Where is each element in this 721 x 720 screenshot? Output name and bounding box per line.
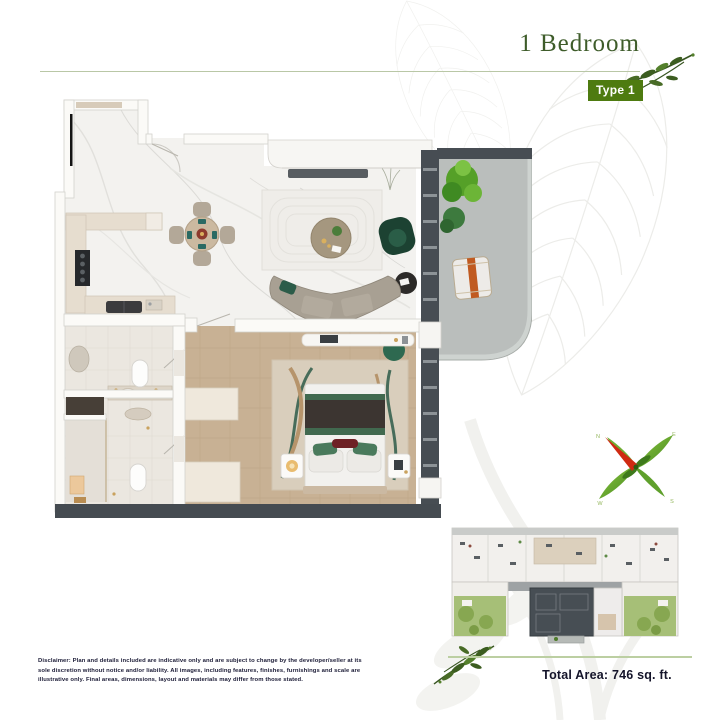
- total-area-label: Total Area: 746 sq. ft.: [497, 668, 717, 682]
- tv-console: [288, 169, 368, 178]
- bed: [303, 384, 387, 494]
- door-gap: [174, 436, 184, 462]
- nightstand-right: [388, 454, 410, 478]
- nightstand-left: [281, 454, 303, 478]
- level-overview-plan: [450, 522, 680, 644]
- leaf-compass-icon: N E S W: [591, 425, 681, 509]
- compass-e-label: E: [672, 432, 676, 438]
- mini-core: [530, 588, 594, 636]
- header-divider: [40, 71, 640, 72]
- type-badge: Type 1: [588, 80, 643, 101]
- mini-garden-left: [454, 596, 506, 636]
- bedroom-console: [302, 334, 414, 346]
- balcony: [439, 159, 532, 360]
- entry-window: [70, 114, 73, 166]
- wardrobe-2: [184, 462, 240, 502]
- leaf-branch-icon: [432, 636, 496, 688]
- disclaimer-text: Disclaimer: Plan and details included ar…: [38, 657, 370, 686]
- brochure-page: 1 Bedroom Type 1: [0, 0, 721, 720]
- kitchen-sink: [146, 300, 162, 310]
- wardrobe: [184, 388, 238, 420]
- door-gap: [174, 350, 184, 376]
- compass-w-label: W: [597, 501, 603, 507]
- footer-divider: [448, 656, 692, 658]
- floor-plan-illustration: [50, 98, 532, 520]
- mini-garden-right: [624, 596, 676, 636]
- compass-s-label: S: [670, 499, 674, 505]
- lounge-chair: [452, 256, 492, 300]
- compass-n-label: N: [596, 434, 600, 440]
- stove: [75, 250, 90, 286]
- coffee-table: [311, 218, 351, 258]
